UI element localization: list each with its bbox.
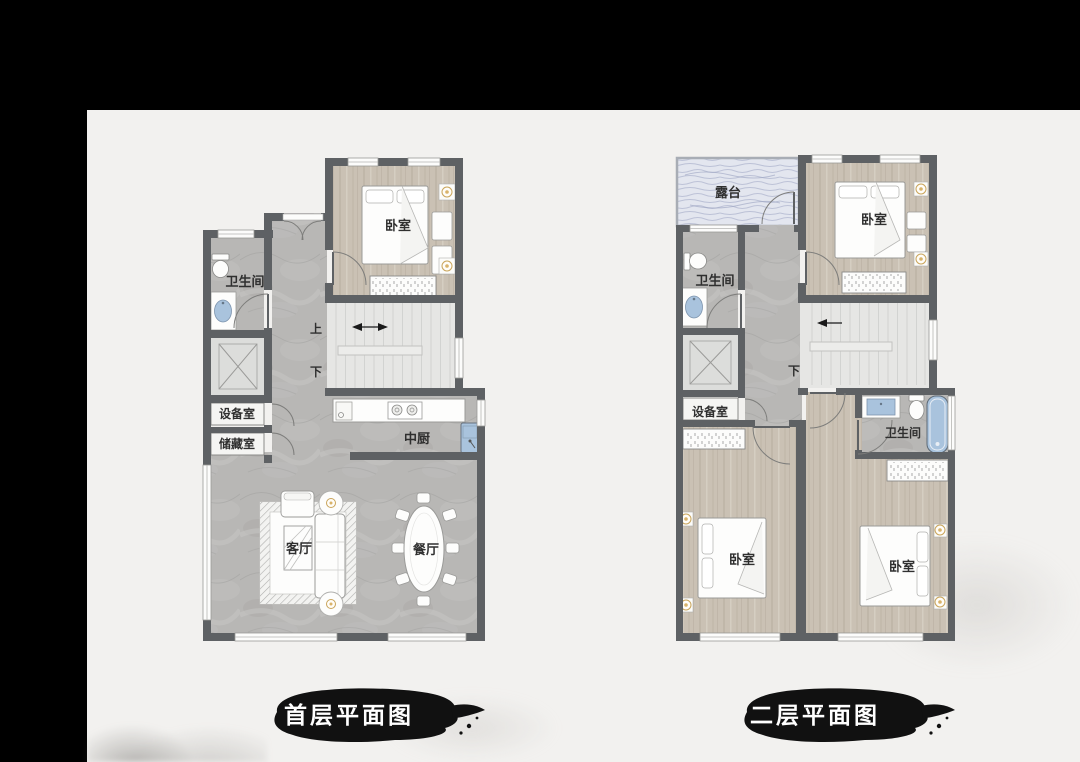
first-floor-title-text: 首层平面图 (284, 702, 414, 728)
floor-plan-second: 露台 卧室 卫生间 设备室 下 卫生间 卧室 卧室 (655, 140, 970, 660)
bedroom-top-label: 卧室 (861, 212, 887, 227)
nightstand-icon (432, 212, 452, 240)
bathroom-right-label: 卫生间 (885, 425, 921, 440)
toilet-icon (684, 253, 707, 270)
wall-lamp-icon (914, 252, 928, 266)
stair-handrail (338, 346, 422, 355)
dining-room-label: 餐厅 (412, 542, 439, 557)
wardrobe-icon (887, 460, 948, 481)
elevator-shaft (211, 338, 264, 395)
equipment-room-label: 设备室 (219, 406, 255, 421)
nightstand-icon (907, 212, 926, 229)
kitchen-counter (333, 399, 465, 422)
second-floor-title-text: 二层平面图 (750, 703, 880, 728)
armchair-icon (281, 491, 314, 517)
kitchen-sink-icon (461, 423, 479, 453)
second-floor-title: 二层平面图 (725, 680, 960, 752)
wardrobe-icon (842, 272, 906, 293)
wall-lamp-icon (439, 258, 455, 274)
ink-mountains-watermark (87, 680, 267, 762)
bedroom-right-label: 卧室 (889, 559, 915, 574)
nightstand-icon (907, 235, 926, 252)
storage-room-label: 储藏室 (219, 436, 255, 451)
floor-plan-first: 卧室 卫生间 设备室 储藏室 中厨 客厅 餐厅 上 下 (190, 140, 500, 660)
wall-lamp-icon (934, 596, 947, 609)
hallway-floor (272, 213, 327, 460)
equipment-room-label: 设备室 (692, 404, 728, 419)
kitchen-label: 中厨 (404, 431, 430, 446)
wall-lamp-icon (439, 184, 455, 200)
bedroom-left-label: 卧室 (729, 552, 755, 567)
vanity-sink-icon (862, 396, 900, 418)
sink-icon (681, 288, 707, 326)
stove-icon (388, 402, 422, 419)
sink-icon (211, 292, 236, 330)
wardrobe-icon (683, 429, 745, 449)
bathroom-left-label: 卫生间 (695, 273, 734, 288)
terrace-label: 露台 (715, 185, 741, 200)
elevator-shaft (683, 335, 738, 390)
stair-down-label: 下 (310, 365, 322, 379)
side-table-icon (319, 491, 343, 515)
stair-up-label: 上 (310, 321, 322, 336)
entry-threshold (283, 214, 323, 220)
bedroom-label: 卧室 (385, 218, 411, 233)
toilet-icon (909, 395, 924, 420)
side-table-icon (319, 592, 343, 616)
first-floor-title: 首层平面图 (255, 680, 490, 752)
wall-lamp-icon (914, 182, 928, 196)
stair-handrail (810, 342, 892, 351)
living-room-label: 客厅 (286, 541, 312, 556)
bathtub-icon (927, 396, 948, 453)
wall-lamp-icon (934, 524, 947, 537)
stair-down-label: 下 (788, 364, 800, 378)
wardrobe-icon (370, 276, 436, 297)
bathroom-label: 卫生间 (225, 274, 264, 289)
sofa-icon (315, 514, 345, 598)
